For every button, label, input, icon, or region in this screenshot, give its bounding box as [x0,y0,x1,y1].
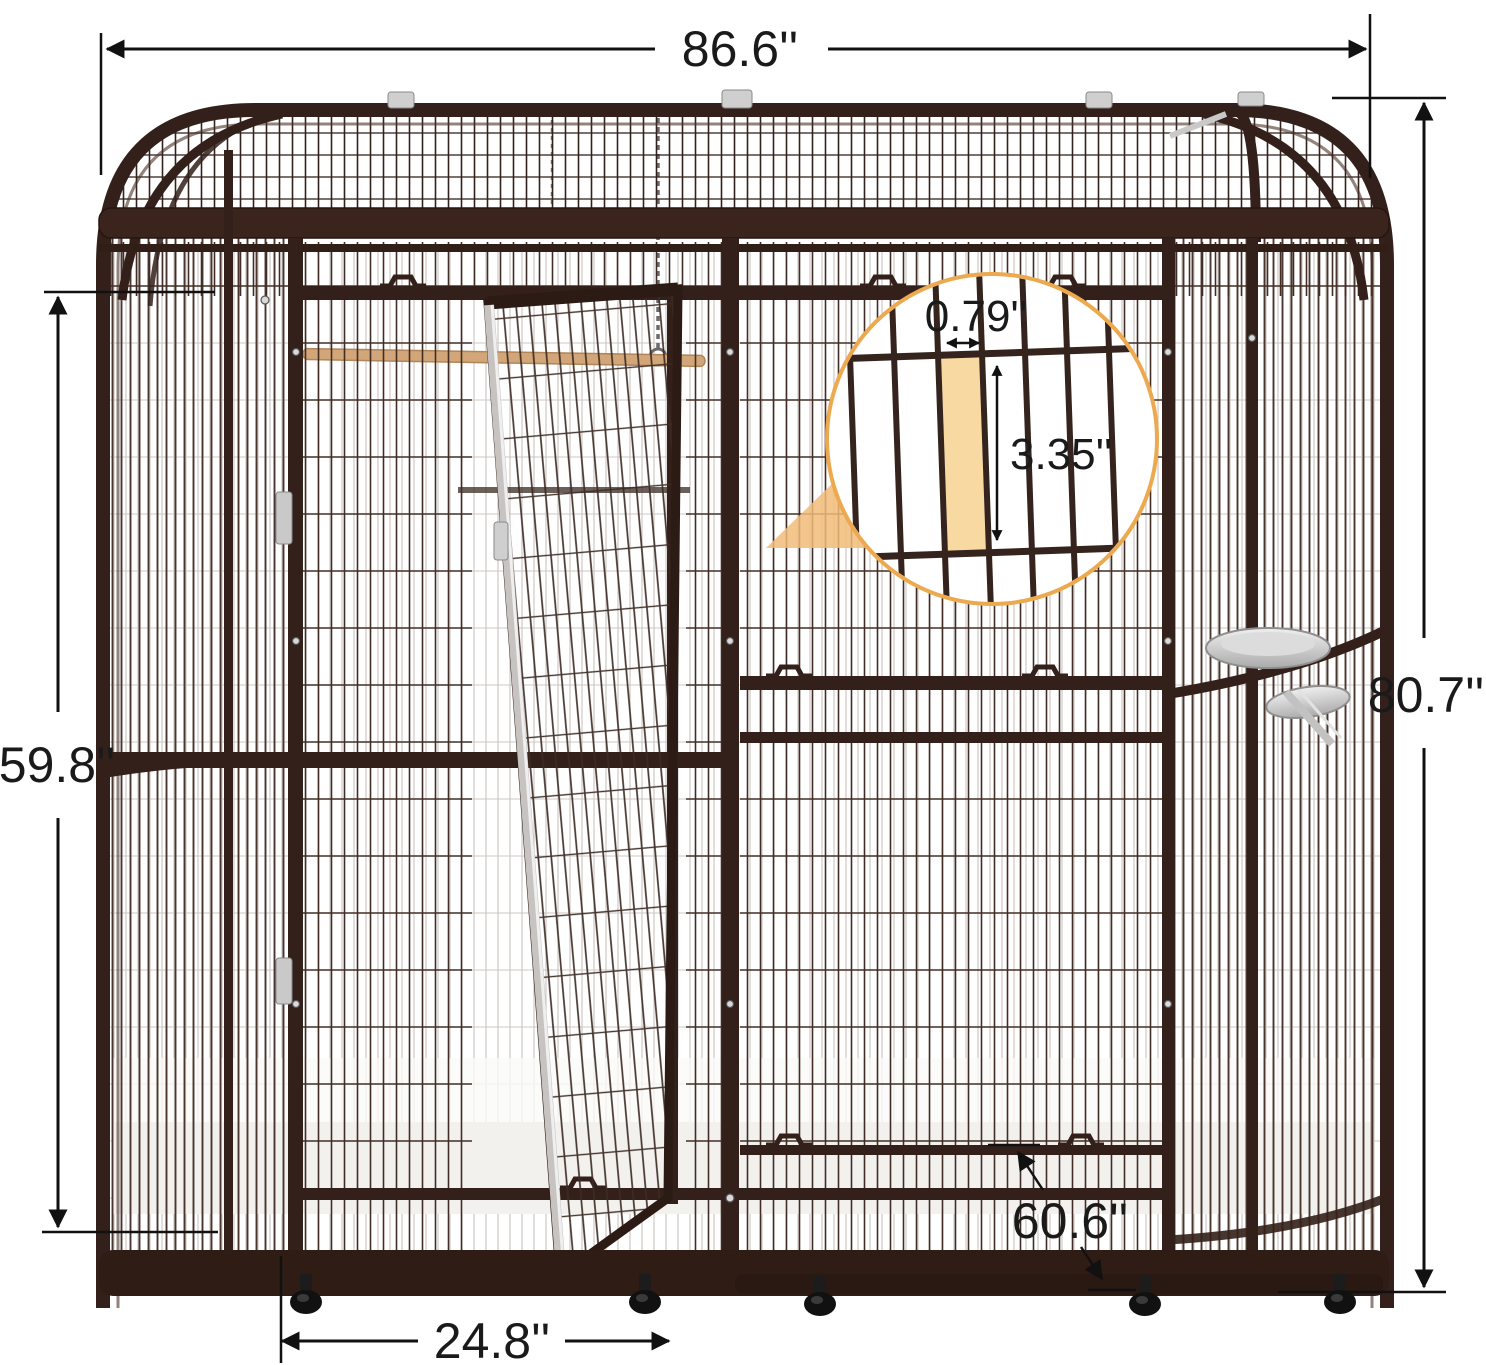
roof-clamp [388,92,414,108]
roof-clamp [1238,92,1264,106]
bar-gap-height-label: 3.35'' [1010,430,1112,479]
bar-gap-width-label: 0.79'' [925,292,1027,341]
collar-rail [99,208,1389,238]
depth-label: 60.6'' [1012,1193,1128,1249]
roof-clamp [722,90,752,108]
roof-clamp [1086,92,1112,108]
side-latch-lower [276,958,292,1004]
cage-body [95,90,1395,1316]
gap-highlight [941,352,986,555]
overall-height-label: 80.7'' [1368,667,1484,723]
side-height-label: 59.8'' [0,737,115,793]
front-left-mesh [300,296,472,1258]
feeder-bowl-inner [1221,632,1315,656]
door-latch [494,522,508,560]
door-width-label: 24.8'' [434,1313,550,1365]
left-side-mesh [104,212,294,1274]
right-corner-mesh [1168,212,1388,1274]
side-latch [276,492,292,544]
overall-width-label: 86.6'' [682,21,798,77]
product-dimension-diagram: 0.79'' 3.35'' 86.6'' 80.7'' 59.8'' 24.8'… [0,0,1486,1365]
bird-cage-diagram: 0.79'' 3.35'' 86.6'' 80.7'' 59.8'' 24.8'… [0,0,1486,1365]
